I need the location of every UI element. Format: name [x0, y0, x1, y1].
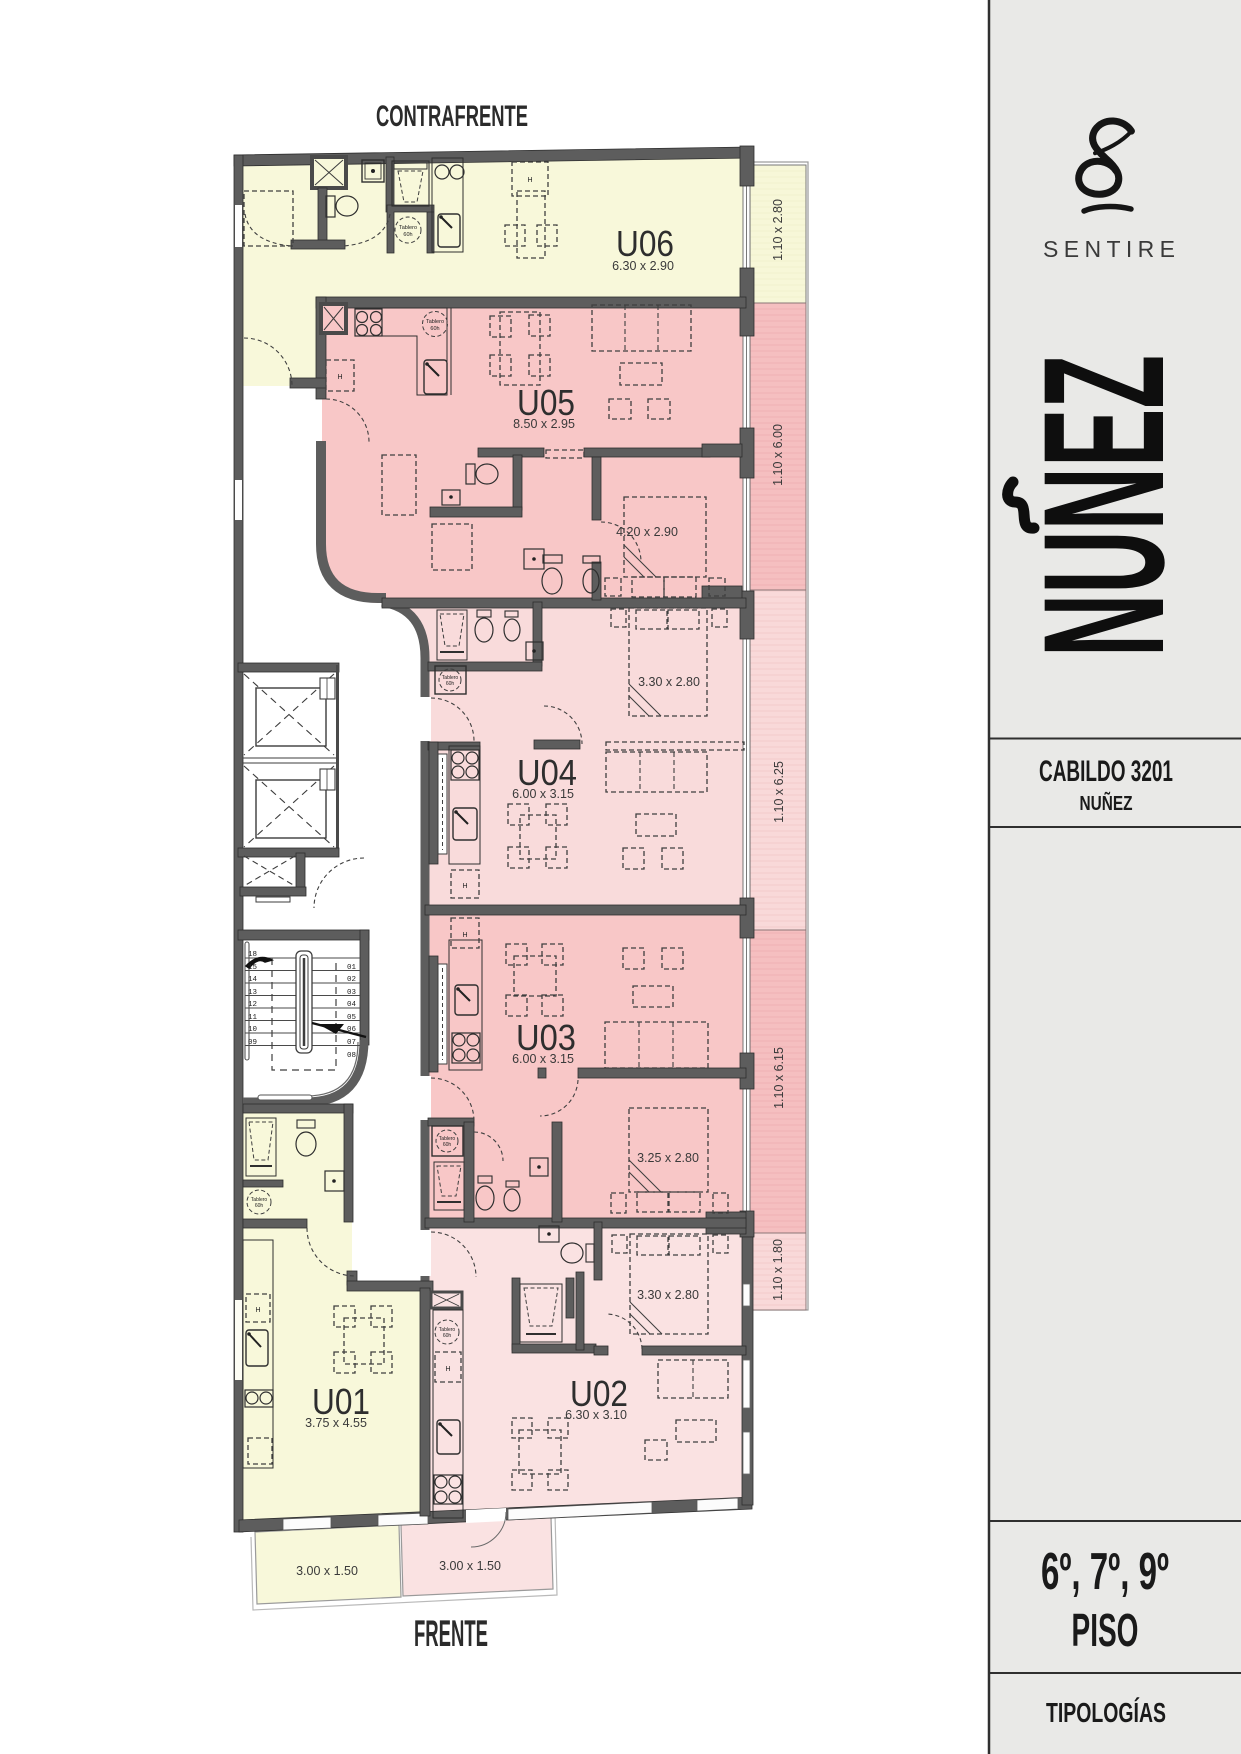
svg-text:06: 06 — [347, 1026, 357, 1034]
svg-text:60h: 60h — [403, 232, 412, 238]
svg-text:6º, 7º, 9º: 6º, 7º, 9º — [1041, 1543, 1169, 1601]
svg-text:60h: 60h — [446, 681, 455, 687]
svg-text:8.50 x 2.95: 8.50 x 2.95 — [513, 417, 575, 431]
svg-text:1.10 x 1.80: 1.10 x 1.80 — [771, 1239, 785, 1301]
svg-text:1.10 x 2.80: 1.10 x 2.80 — [771, 199, 785, 261]
svg-text:6.00 x 3.15: 6.00 x 3.15 — [512, 1052, 574, 1066]
svg-text:10: 10 — [248, 1026, 258, 1034]
svg-text:TIPOLOGÍAS: TIPOLOGÍAS — [1046, 1697, 1166, 1728]
svg-text:6.30 x 3.10: 6.30 x 3.10 — [565, 1408, 627, 1422]
svg-text:60h: 60h — [443, 1142, 452, 1148]
svg-text:CONTRAFRENTE: CONTRAFRENTE — [376, 100, 528, 133]
svg-text:18: 18 — [248, 951, 257, 959]
svg-text:60h: 60h — [255, 1203, 264, 1209]
svg-text:09: 09 — [248, 1039, 257, 1047]
svg-text:3.30 x 2.80: 3.30 x 2.80 — [638, 675, 700, 689]
svg-text:3.75 x 4.55: 3.75 x 4.55 — [305, 1416, 367, 1430]
svg-text:1.10 x 6.25: 1.10 x 6.25 — [772, 761, 786, 823]
svg-text:1.10 x 6.00: 1.10 x 6.00 — [771, 424, 785, 486]
svg-text:H: H — [527, 177, 532, 184]
svg-text:13: 13 — [248, 989, 258, 997]
svg-text:Tablero: Tablero — [426, 319, 444, 325]
svg-text:07: 07 — [347, 1039, 356, 1047]
svg-text:03: 03 — [347, 989, 357, 997]
svg-text:4.20 x 2.90: 4.20 x 2.90 — [616, 525, 678, 539]
svg-text:H: H — [337, 374, 342, 381]
svg-text:6.00 x 3.15: 6.00 x 3.15 — [512, 787, 574, 801]
svg-text:15: 15 — [248, 964, 258, 972]
svg-text:H: H — [445, 1366, 450, 1373]
svg-text:08: 08 — [347, 1052, 356, 1060]
svg-text:3.25 x 2.80: 3.25 x 2.80 — [637, 1151, 699, 1165]
svg-text:PISO: PISO — [1072, 1604, 1139, 1656]
svg-text:3.00 x 1.50: 3.00 x 1.50 — [439, 1559, 501, 1573]
svg-text:H: H — [462, 883, 467, 890]
svg-text:NUNEZ: NUNEZ — [1008, 355, 1200, 657]
svg-text:05: 05 — [347, 1014, 357, 1022]
svg-text:Tablero: Tablero — [399, 225, 417, 231]
svg-text:04: 04 — [347, 1001, 357, 1009]
svg-text:U06: U06 — [616, 223, 674, 264]
svg-text:01: 01 — [347, 964, 357, 972]
svg-text:3.00 x 1.50: 3.00 x 1.50 — [296, 1564, 358, 1578]
svg-text:02: 02 — [347, 976, 356, 984]
svg-text:60h: 60h — [443, 1333, 452, 1339]
svg-text:FRENTE: FRENTE — [414, 1613, 488, 1654]
svg-text:6.30 x 2.90: 6.30 x 2.90 — [612, 259, 674, 273]
svg-text:NUÑEZ: NUÑEZ — [1080, 792, 1133, 815]
svg-text:1.10 x 6.15: 1.10 x 6.15 — [772, 1047, 786, 1109]
svg-text:12: 12 — [248, 1001, 257, 1009]
svg-text:H: H — [462, 932, 467, 939]
svg-text:3.30 x 2.80: 3.30 x 2.80 — [637, 1288, 699, 1302]
svg-text:14: 14 — [248, 976, 258, 984]
svg-text:H: H — [255, 1307, 260, 1314]
svg-text:CABILDO 3201: CABILDO 3201 — [1039, 755, 1173, 788]
svg-text:60h: 60h — [430, 326, 439, 332]
svg-text:11: 11 — [248, 1014, 258, 1022]
